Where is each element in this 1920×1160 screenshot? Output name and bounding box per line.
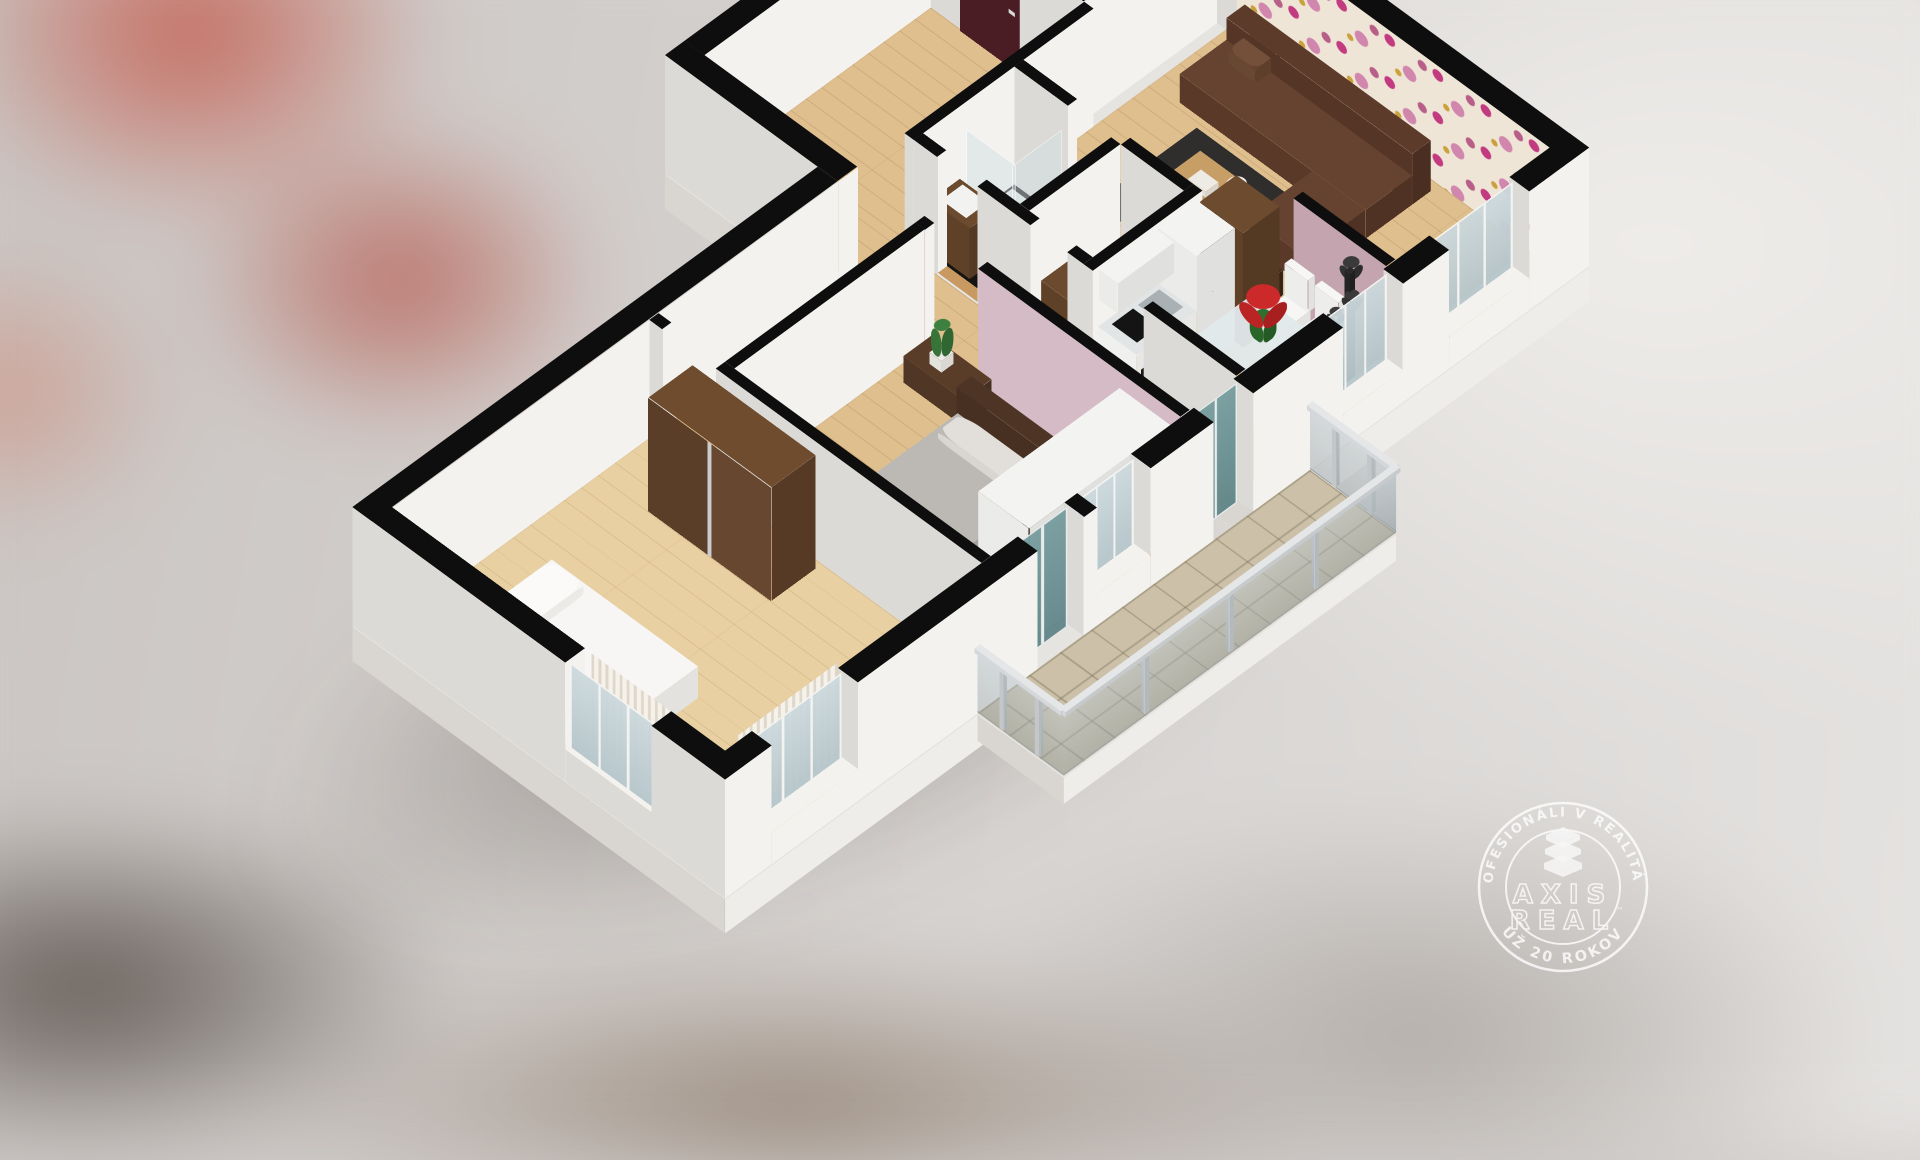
wall-int-bath-corridor-a-face-se <box>937 150 946 275</box>
axis-real-watermark: PROFESIONÁLI V REALITÁCH UŽ 20 ROKOV AXI… <box>1463 787 1663 987</box>
furniture-balcony-post-1-face-se <box>1315 529 1319 590</box>
wall-ext-sw-bedroom1-b-face-se <box>725 765 745 898</box>
watermark-trademark: ™ <box>1616 906 1624 915</box>
floorplan-3d-render: PROFESIONÁLI V REALITÁCH UŽ 20 ROKOV AXI… <box>0 0 1920 1080</box>
furniture-balcony-post-2-face-se <box>1230 591 1234 652</box>
wall-ext-se-5-face-se <box>1084 507 1097 635</box>
furniture-chair-1-back-face-se <box>1308 275 1315 312</box>
watermark-brand-real: REAL <box>1510 906 1616 936</box>
axis-real-building-icon <box>1544 827 1582 877</box>
furniture-balcony-post-3-face-se <box>1145 653 1149 714</box>
